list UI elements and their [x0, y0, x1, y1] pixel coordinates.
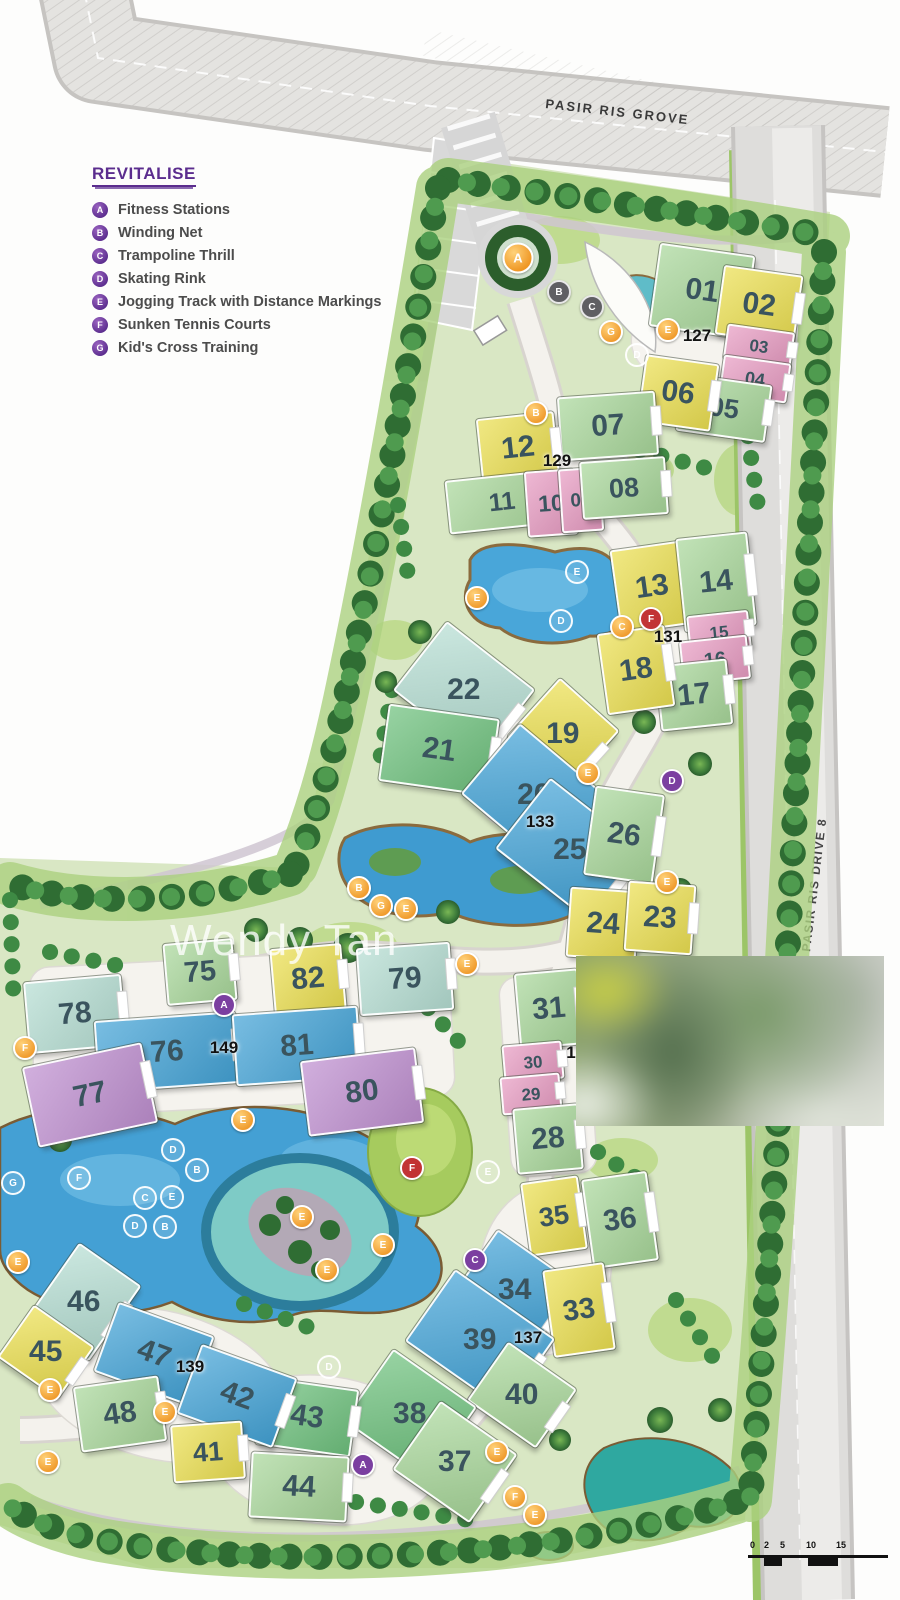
legend-item-label: Skating Rink — [118, 271, 206, 287]
legend-item-c: C Trampoline Thrill — [92, 248, 381, 264]
legend-badge-g: G — [92, 340, 108, 356]
watermark: Wendy Tan — [170, 916, 398, 966]
scale-label: 5 — [780, 1540, 785, 1550]
legend-item-label: Sunken Tennis Courts — [118, 317, 271, 333]
legend-item-e: E Jogging Track with Distance Markings — [92, 294, 381, 310]
legend-badge-f: F — [92, 317, 108, 333]
scale-bar-segment — [764, 1558, 782, 1566]
event-lawn-hill — [368, 1088, 472, 1216]
legend: REVITALISE A Fitness Stations B Winding … — [92, 164, 381, 363]
legend-item-f: F Sunken Tennis Courts — [92, 317, 381, 333]
legend-badge-c: C — [92, 248, 108, 264]
legend-item-label: Trampoline Thrill — [118, 248, 235, 264]
legend-item-label: Fitness Stations — [118, 202, 230, 218]
scale-label: 2 — [764, 1540, 769, 1550]
legend-badge-b: B — [92, 225, 108, 241]
legend-item-label: Kid's Cross Training — [118, 340, 258, 356]
legend-badge-d: D — [92, 271, 108, 287]
legend-item-d: D Skating Rink — [92, 271, 381, 287]
legend-item-a: A Fitness Stations — [92, 202, 381, 218]
legend-title: REVITALISE — [92, 164, 196, 187]
legend-item-label: Jogging Track with Distance Markings — [118, 294, 381, 310]
legend-item-label: Winding Net — [118, 225, 202, 241]
legend-badge-a: A — [92, 202, 108, 218]
scale-label: 10 — [806, 1540, 816, 1550]
legend-item-b: B Winding Net — [92, 225, 381, 241]
legend-badge-e: E — [92, 294, 108, 310]
scale-label: 15 — [836, 1540, 846, 1550]
blurred-region — [576, 956, 884, 1126]
legend-item-g: G Kid's Cross Training — [92, 340, 381, 356]
site-plan-page: PASIR RIS GROVE PASIR RIS DRIVE 8 — [0, 0, 900, 1600]
scale-label: 0 — [750, 1540, 755, 1550]
scale-bar: 0 2 5 10 15 — [744, 1540, 894, 1576]
scale-bar-segment — [808, 1558, 838, 1566]
